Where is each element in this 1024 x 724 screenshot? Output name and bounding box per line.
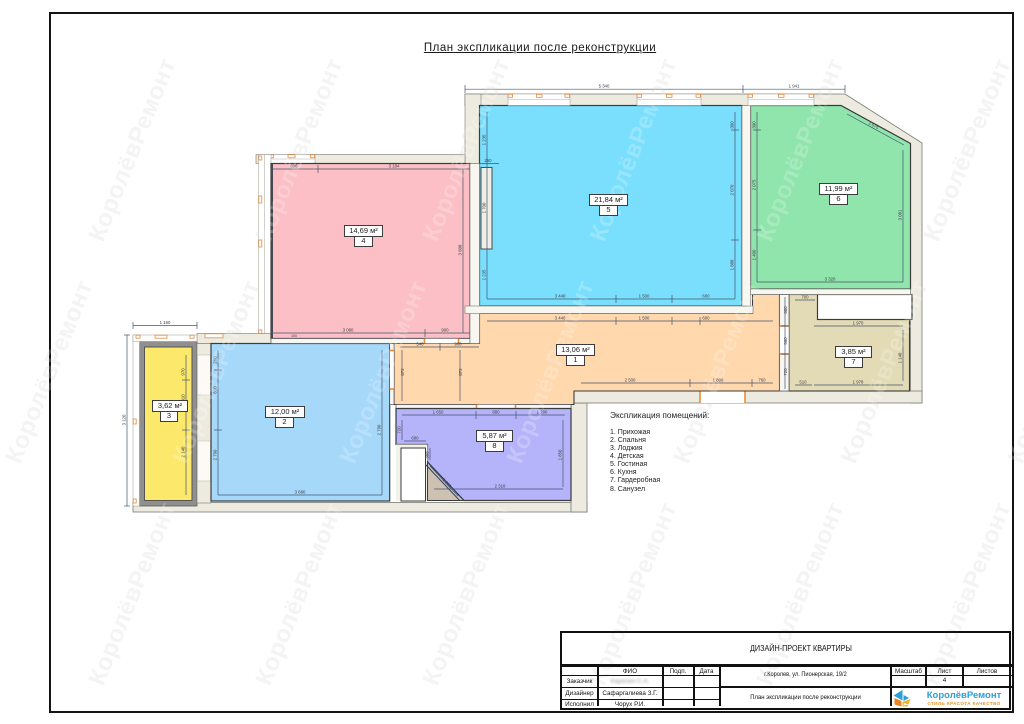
svg-text:3 184: 3 184 [389,163,400,168]
svg-text:3 608: 3 608 [458,244,463,255]
svg-text:1 400: 1 400 [752,249,757,260]
svg-text:1 500: 1 500 [639,315,650,320]
svg-text:872: 872 [400,368,405,376]
svg-text:600: 600 [702,293,710,298]
svg-text:900: 900 [441,327,449,332]
svg-text:300: 300 [730,121,735,129]
svg-text:1 700: 1 700 [482,202,487,213]
svg-text:880: 880 [492,409,500,414]
svg-text:250: 250 [484,158,492,163]
svg-text:1 650: 1 650 [433,409,444,414]
svg-text:3 081: 3 081 [898,209,903,220]
svg-text:2 500: 2 500 [625,377,636,382]
svg-text:510: 510 [799,379,807,384]
svg-text:970: 970 [180,368,185,376]
svg-text:540: 540 [416,341,424,346]
svg-text:560: 560 [783,337,788,345]
svg-text:2 318: 2 318 [495,483,506,488]
svg-text:1 160: 1 160 [160,320,171,325]
svg-text:700: 700 [801,294,809,299]
svg-text:2 790: 2 790 [212,449,217,460]
svg-text:900: 900 [454,341,462,346]
svg-text:1 941: 1 941 [789,84,800,89]
svg-text:600: 600 [783,306,788,314]
svg-text:300: 300 [752,121,757,129]
svg-text:3 080: 3 080 [343,327,354,332]
svg-text:3 320: 3 320 [825,276,836,281]
svg-text:2 070: 2 070 [730,184,735,195]
svg-text:1 978: 1 978 [853,379,864,384]
svg-text:872: 872 [458,368,463,376]
svg-text:5 340: 5 340 [599,84,610,89]
svg-text:2 075: 2 075 [752,179,757,190]
svg-text:1 500: 1 500 [639,293,650,298]
svg-text:1 888: 1 888 [730,259,735,270]
svg-text:3 680: 3 680 [295,489,306,494]
svg-text:720: 720 [783,368,788,376]
svg-text:1 970: 1 970 [853,320,864,325]
svg-text:1 850: 1 850 [557,449,562,460]
svg-text:600: 600 [702,315,710,320]
svg-text:388: 388 [424,451,429,459]
svg-text:680: 680 [411,435,419,440]
svg-text:1 235: 1 235 [482,269,487,280]
svg-text:720: 720 [396,426,401,434]
svg-text:760: 760 [758,377,766,382]
svg-text:3 440: 3 440 [555,293,566,298]
svg-text:3 120: 3 120 [121,414,126,425]
svg-text:100: 100 [291,334,297,338]
